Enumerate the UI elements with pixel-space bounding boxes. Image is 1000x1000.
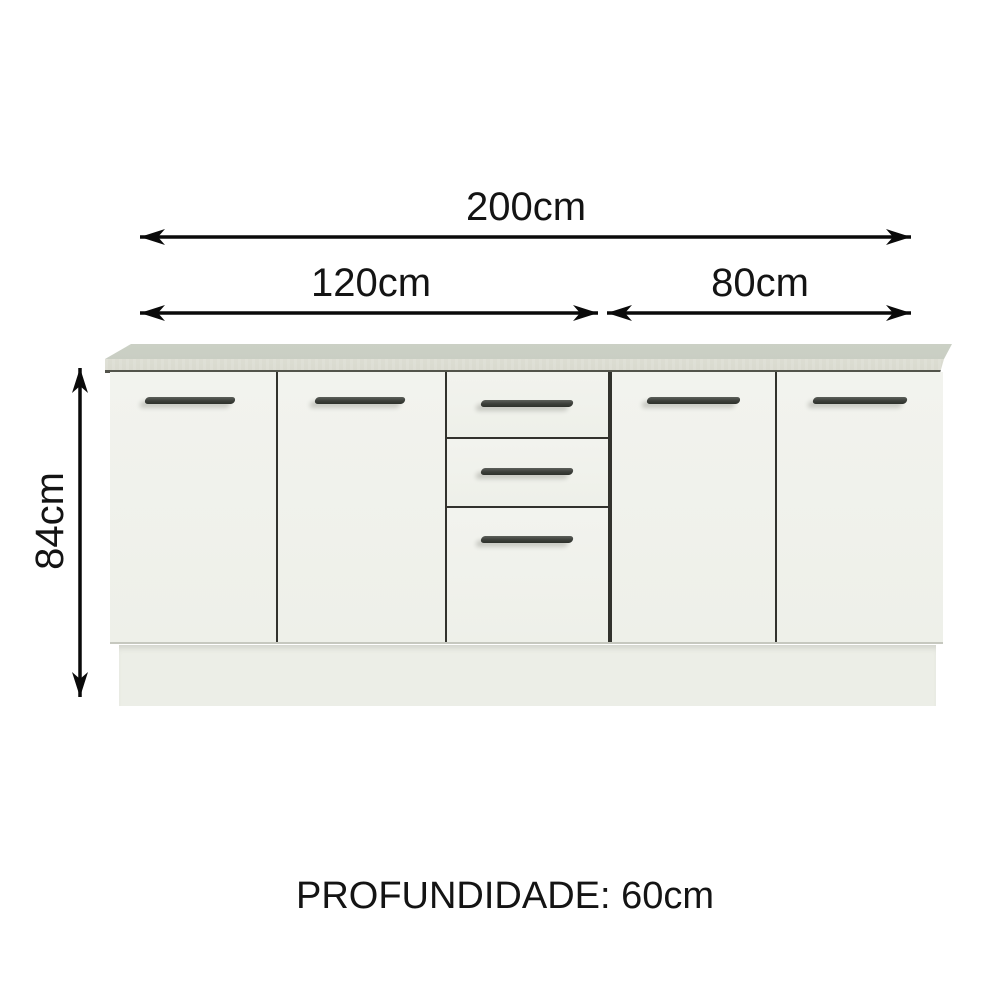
countertop-surface xyxy=(103,344,955,359)
right-door-2-handle xyxy=(812,397,908,404)
left-door-1-handle xyxy=(144,397,236,404)
drawer-2-handle xyxy=(480,468,574,475)
right-door-2 xyxy=(775,372,943,644)
left-door-2 xyxy=(276,372,445,644)
left-door-2-handle xyxy=(314,397,406,404)
drawer-stack xyxy=(445,372,610,644)
right-door-1 xyxy=(610,372,775,644)
depth-label: PROFUNDIDADE: 60cm xyxy=(205,877,805,915)
doors-bottom-shadow xyxy=(110,642,943,644)
drawer-1-handle xyxy=(480,400,574,407)
total-width-label: 200cm xyxy=(376,187,676,227)
right-door-1-handle xyxy=(646,397,741,404)
drawer-3 xyxy=(445,506,610,644)
cabinet-body xyxy=(110,372,943,644)
height-label: 84cm xyxy=(30,371,70,671)
left-door-1 xyxy=(110,372,276,644)
countertop-front-edge xyxy=(105,359,944,373)
dimension-diagram: 200cm 120cm 80cm 84cm PROFUNDIDADE: 60cm xyxy=(0,0,1000,1000)
left-section-width-label: 120cm xyxy=(221,263,521,303)
drawer-3-handle xyxy=(480,536,574,543)
plinth-base xyxy=(119,645,936,706)
right-section-width-label: 80cm xyxy=(610,263,910,303)
